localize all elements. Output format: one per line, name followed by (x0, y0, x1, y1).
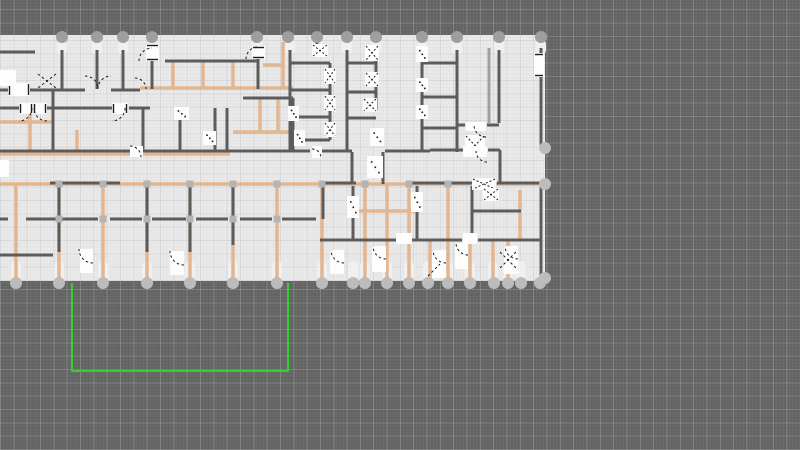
door-dot-mark (378, 172, 380, 174)
door-dot-mark (380, 141, 382, 143)
wall-node-handle[interactable] (539, 178, 551, 190)
editor-canvas[interactable] (0, 0, 800, 450)
wall-node-handle[interactable] (493, 31, 505, 43)
door-opening[interactable] (365, 45, 379, 61)
wall-joint (187, 216, 194, 223)
door-opening[interactable] (312, 44, 328, 57)
door-leaf-area (463, 233, 477, 244)
door-opening[interactable] (416, 46, 428, 62)
wall-node-handle[interactable] (282, 31, 294, 43)
wall-node-handle[interactable] (403, 277, 415, 289)
wall-joint (56, 216, 63, 223)
door-opening[interactable] (203, 131, 216, 145)
door-leaf-area (330, 250, 344, 274)
door-dot-mark (414, 197, 416, 199)
door-leaf-area (396, 233, 412, 244)
door-dot-mark (353, 207, 355, 209)
wall-node-handle[interactable] (117, 31, 129, 43)
wall-node-handle[interactable] (451, 31, 463, 43)
wall-joint (274, 216, 281, 223)
door-dot-mark (422, 85, 424, 87)
wall-node-handle[interactable] (91, 31, 103, 43)
wall-joint (445, 181, 452, 188)
door-opening[interactable] (174, 107, 189, 120)
door-dot-mark (295, 116, 297, 118)
door-leaf-area (463, 146, 487, 157)
wall-node-handle[interactable] (539, 272, 551, 284)
wall-node-handle[interactable] (488, 277, 500, 289)
door-dot-mark (419, 206, 421, 208)
door-dot-mark (422, 54, 424, 56)
door-opening[interactable] (416, 78, 428, 92)
wall-node-handle[interactable] (227, 277, 239, 289)
wall-node-handle[interactable] (141, 277, 153, 289)
wall-node-handle[interactable] (464, 277, 476, 289)
wall-joint (274, 181, 281, 188)
wall-node-handle[interactable] (535, 31, 547, 43)
door-opening[interactable] (330, 250, 344, 274)
wall-joint (144, 216, 151, 223)
wall-joint (406, 181, 413, 188)
door-dot-mark (209, 138, 211, 140)
wall-node-handle[interactable] (311, 31, 323, 43)
wall-node-handle[interactable] (370, 31, 382, 43)
door-leaf-area (0, 160, 9, 177)
wall-joint (187, 181, 194, 188)
wall-node-handle[interactable] (97, 277, 109, 289)
door-dot-mark (350, 201, 352, 203)
door-opening[interactable] (455, 243, 468, 269)
door-leaf-area (534, 53, 544, 77)
door-dot-mark (291, 110, 293, 112)
door-dot-mark (301, 141, 303, 143)
wall-node-handle[interactable] (539, 142, 551, 154)
door-opening[interactable] (466, 122, 486, 131)
door-dot-mark (424, 57, 426, 59)
door-dot-mark (355, 212, 357, 214)
wall-node-handle[interactable] (184, 277, 196, 289)
door-dot-mark (299, 138, 301, 140)
wall-node-handle[interactable] (422, 277, 434, 289)
wall-joint (100, 216, 107, 223)
door-dot-mark (424, 88, 426, 90)
door-opening[interactable] (252, 46, 265, 59)
door-opening[interactable] (0, 160, 9, 177)
door-opening[interactable] (463, 146, 487, 157)
door-dot-mark (371, 161, 373, 163)
door-opening[interactable] (363, 98, 377, 112)
wall-node-handle[interactable] (359, 277, 371, 289)
door-opening[interactable] (112, 103, 128, 114)
door-opening[interactable] (0, 70, 16, 86)
door-opening[interactable] (324, 68, 336, 84)
wall-node-handle[interactable] (316, 277, 328, 289)
wall-joint (319, 181, 326, 188)
door-leaf-area (146, 44, 159, 61)
door-opening[interactable] (19, 103, 33, 114)
door-opening[interactable] (288, 106, 299, 121)
door-dot-mark (293, 113, 295, 115)
door-dot-mark (206, 134, 208, 136)
door-dot-mark (419, 108, 421, 110)
wall-node-handle[interactable] (341, 31, 353, 43)
wall-node-handle[interactable] (53, 277, 65, 289)
wall-joint (100, 181, 107, 188)
door-dot-mark (297, 134, 299, 136)
door-opening[interactable] (146, 44, 159, 61)
door-leaf-area (112, 103, 128, 114)
door-dot-mark (178, 110, 180, 112)
wall-node-handle[interactable] (271, 277, 283, 289)
door-opening[interactable] (294, 130, 305, 146)
wall-node-handle[interactable] (10, 277, 22, 289)
door-dot-mark (184, 116, 186, 118)
door-dot-mark (377, 137, 379, 139)
door-opening[interactable] (370, 128, 384, 146)
wall-node-handle[interactable] (56, 31, 68, 43)
wall-joint (144, 181, 151, 188)
door-dot-mark (181, 113, 183, 115)
door-opening[interactable] (483, 188, 499, 201)
door-opening[interactable] (347, 196, 359, 218)
door-dot-mark (373, 132, 375, 134)
door-dot-mark (375, 167, 377, 169)
wall-joint (230, 216, 237, 223)
wall-node-handle[interactable] (442, 277, 454, 289)
selection-outline[interactable] (72, 283, 288, 371)
door-opening[interactable] (365, 72, 379, 87)
door-leaf-area (466, 122, 486, 131)
door-dot-mark (419, 50, 421, 52)
wall-joint (56, 181, 63, 188)
door-opening[interactable] (324, 122, 336, 137)
door-opening[interactable] (367, 156, 383, 178)
door-leaf-area (0, 70, 16, 86)
door-dot-mark (422, 112, 424, 114)
wall-node-handle[interactable] (416, 31, 428, 43)
door-opening[interactable] (324, 95, 336, 111)
door-leaf-area (455, 243, 468, 269)
door-dot-mark (424, 115, 426, 117)
door-opening[interactable] (396, 233, 412, 244)
door-opening[interactable] (416, 105, 428, 119)
wall-node-handle[interactable] (347, 277, 359, 289)
door-leaf-mark (38, 74, 56, 88)
wall-node-handle[interactable] (251, 31, 263, 43)
door-opening[interactable] (463, 233, 477, 244)
wall-node-handle[interactable] (502, 277, 514, 289)
wall-joint (230, 181, 237, 188)
wall-joint (362, 181, 369, 188)
door-swing-arc (98, 76, 111, 89)
wall-node-handle[interactable] (381, 277, 393, 289)
wall-node-handle[interactable] (146, 31, 158, 43)
door-dot-mark (212, 141, 214, 143)
door-opening[interactable] (534, 53, 544, 77)
door-dot-mark (419, 81, 421, 83)
door-dot-mark (417, 202, 419, 204)
door-opening[interactable] (411, 192, 423, 212)
wall-node-handle[interactable] (515, 277, 527, 289)
floorplan-overlay (0, 0, 800, 450)
